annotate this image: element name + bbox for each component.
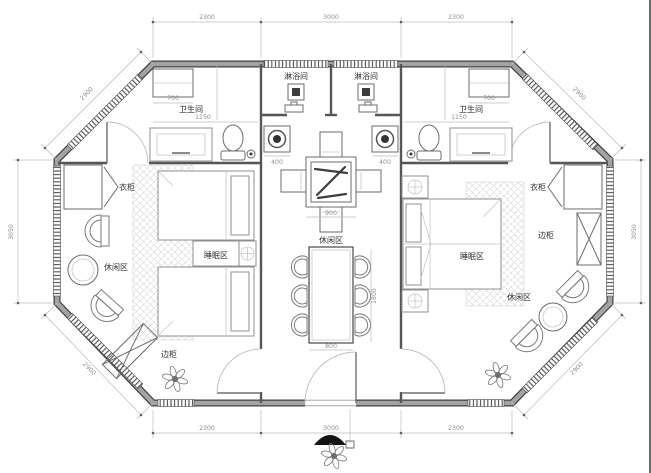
dim-bottom-mid: 3000 <box>323 425 339 432</box>
floor-plan-page: 2300 3000 2300 2300 3000 2300 3050 3050 … <box>0 0 651 473</box>
bedroom-right <box>402 165 602 388</box>
dim-diag-tl: 2900 <box>79 86 95 102</box>
side-cabinet-right <box>577 213 601 265</box>
dim-diag-tr: 2900 <box>571 86 587 102</box>
bathroom-left-door <box>107 122 148 163</box>
label-leisure-center: 休闲区 <box>319 235 343 245</box>
label-cabinet-left: 边柜 <box>161 349 177 359</box>
dim-side-left: 3050 <box>8 224 15 240</box>
wardrobe-right <box>548 165 602 209</box>
label-leisure-left: 休闲区 <box>104 262 128 272</box>
floor-plan-canvas: 2300 3000 2300 2300 3000 2300 3050 3050 … <box>0 0 651 473</box>
label-wardrobe-right: 衣柜 <box>530 182 546 192</box>
window-bottom-left <box>158 400 194 407</box>
nightstand-right-top <box>402 176 428 198</box>
dim-diag-bl: 2900 <box>81 361 97 377</box>
window-top-left-shower <box>264 61 328 68</box>
nightstand-right-bottom <box>402 290 428 312</box>
plant-symbol <box>485 362 512 389</box>
chair-west <box>281 170 306 192</box>
washbasin-left <box>264 126 290 152</box>
label-shower-right: 淋浴间 <box>354 71 378 81</box>
label-bath-right: 卫生间 <box>459 104 483 114</box>
label-sleep-right: 睡眠区 <box>460 252 484 261</box>
window-diagonal-topleft <box>67 74 143 150</box>
dimensions: 2300 3000 2300 2300 3000 2300 3050 3050 … <box>8 14 646 438</box>
dim-dining-width: 800 <box>325 343 337 350</box>
bedroom-right-door <box>401 349 445 393</box>
label-shower-left: 淋浴间 <box>284 71 308 81</box>
plant-symbol <box>162 366 189 393</box>
window-top-right-shower <box>334 61 398 68</box>
chair-north <box>320 132 342 157</box>
window-side-left <box>54 166 61 296</box>
entrance-marker <box>314 435 347 469</box>
dim-window-left: 700 <box>167 95 179 102</box>
dim-top-mid: 3000 <box>323 14 339 21</box>
dim-dining-length: 1800 <box>371 288 378 304</box>
shower-left <box>285 84 304 112</box>
vanity-left <box>150 128 212 161</box>
dim-basin-right: 400 <box>379 159 391 166</box>
window-diagonal-topright <box>522 74 598 150</box>
label-cabinet-right: 边柜 <box>538 230 554 240</box>
bed-left-1 <box>158 171 254 240</box>
floor-drain-left <box>247 150 255 158</box>
label-bath-left: 卫生间 <box>179 104 203 114</box>
label-wardrobe-left: 衣柜 <box>119 182 135 192</box>
bed-right <box>403 199 501 289</box>
entrance-opening <box>305 398 356 408</box>
dim-top-left: 2300 <box>199 14 215 21</box>
label-sleep-left: 睡眠区 <box>204 251 228 260</box>
washbasin-right <box>372 126 398 152</box>
dining-set <box>291 247 370 343</box>
dim-bath-right: 1150 <box>451 114 467 121</box>
toilet-left <box>221 125 245 160</box>
dim-window-right: 700 <box>483 95 495 102</box>
dim-bottom-left: 2300 <box>199 425 215 432</box>
label-leisure-right: 休闲区 <box>507 292 531 302</box>
dim-center-table: 900 <box>325 210 337 217</box>
chair-east <box>356 170 381 192</box>
window-side-right <box>607 166 614 296</box>
bedroom-left-door <box>217 349 261 393</box>
shower-right <box>358 84 377 112</box>
dim-bath-left: 1150 <box>195 114 211 121</box>
bed-left-2 <box>158 267 254 336</box>
toilet-right <box>417 125 441 160</box>
vanity-right <box>450 128 512 161</box>
dim-bottom-right: 2300 <box>448 425 464 432</box>
dining-table <box>309 247 353 343</box>
wardrobe-left <box>64 165 118 209</box>
window-bottom-right <box>468 400 504 407</box>
bedroom-left <box>64 165 256 392</box>
bathroom-right-door <box>509 122 550 163</box>
dim-top-right: 2300 <box>448 14 464 21</box>
floor-drain-right <box>407 150 415 158</box>
dim-diag-br: 2900 <box>569 361 585 377</box>
dim-side-right: 3050 <box>631 224 638 240</box>
plant-symbol <box>321 443 348 470</box>
dim-basin-left: 400 <box>271 159 283 166</box>
